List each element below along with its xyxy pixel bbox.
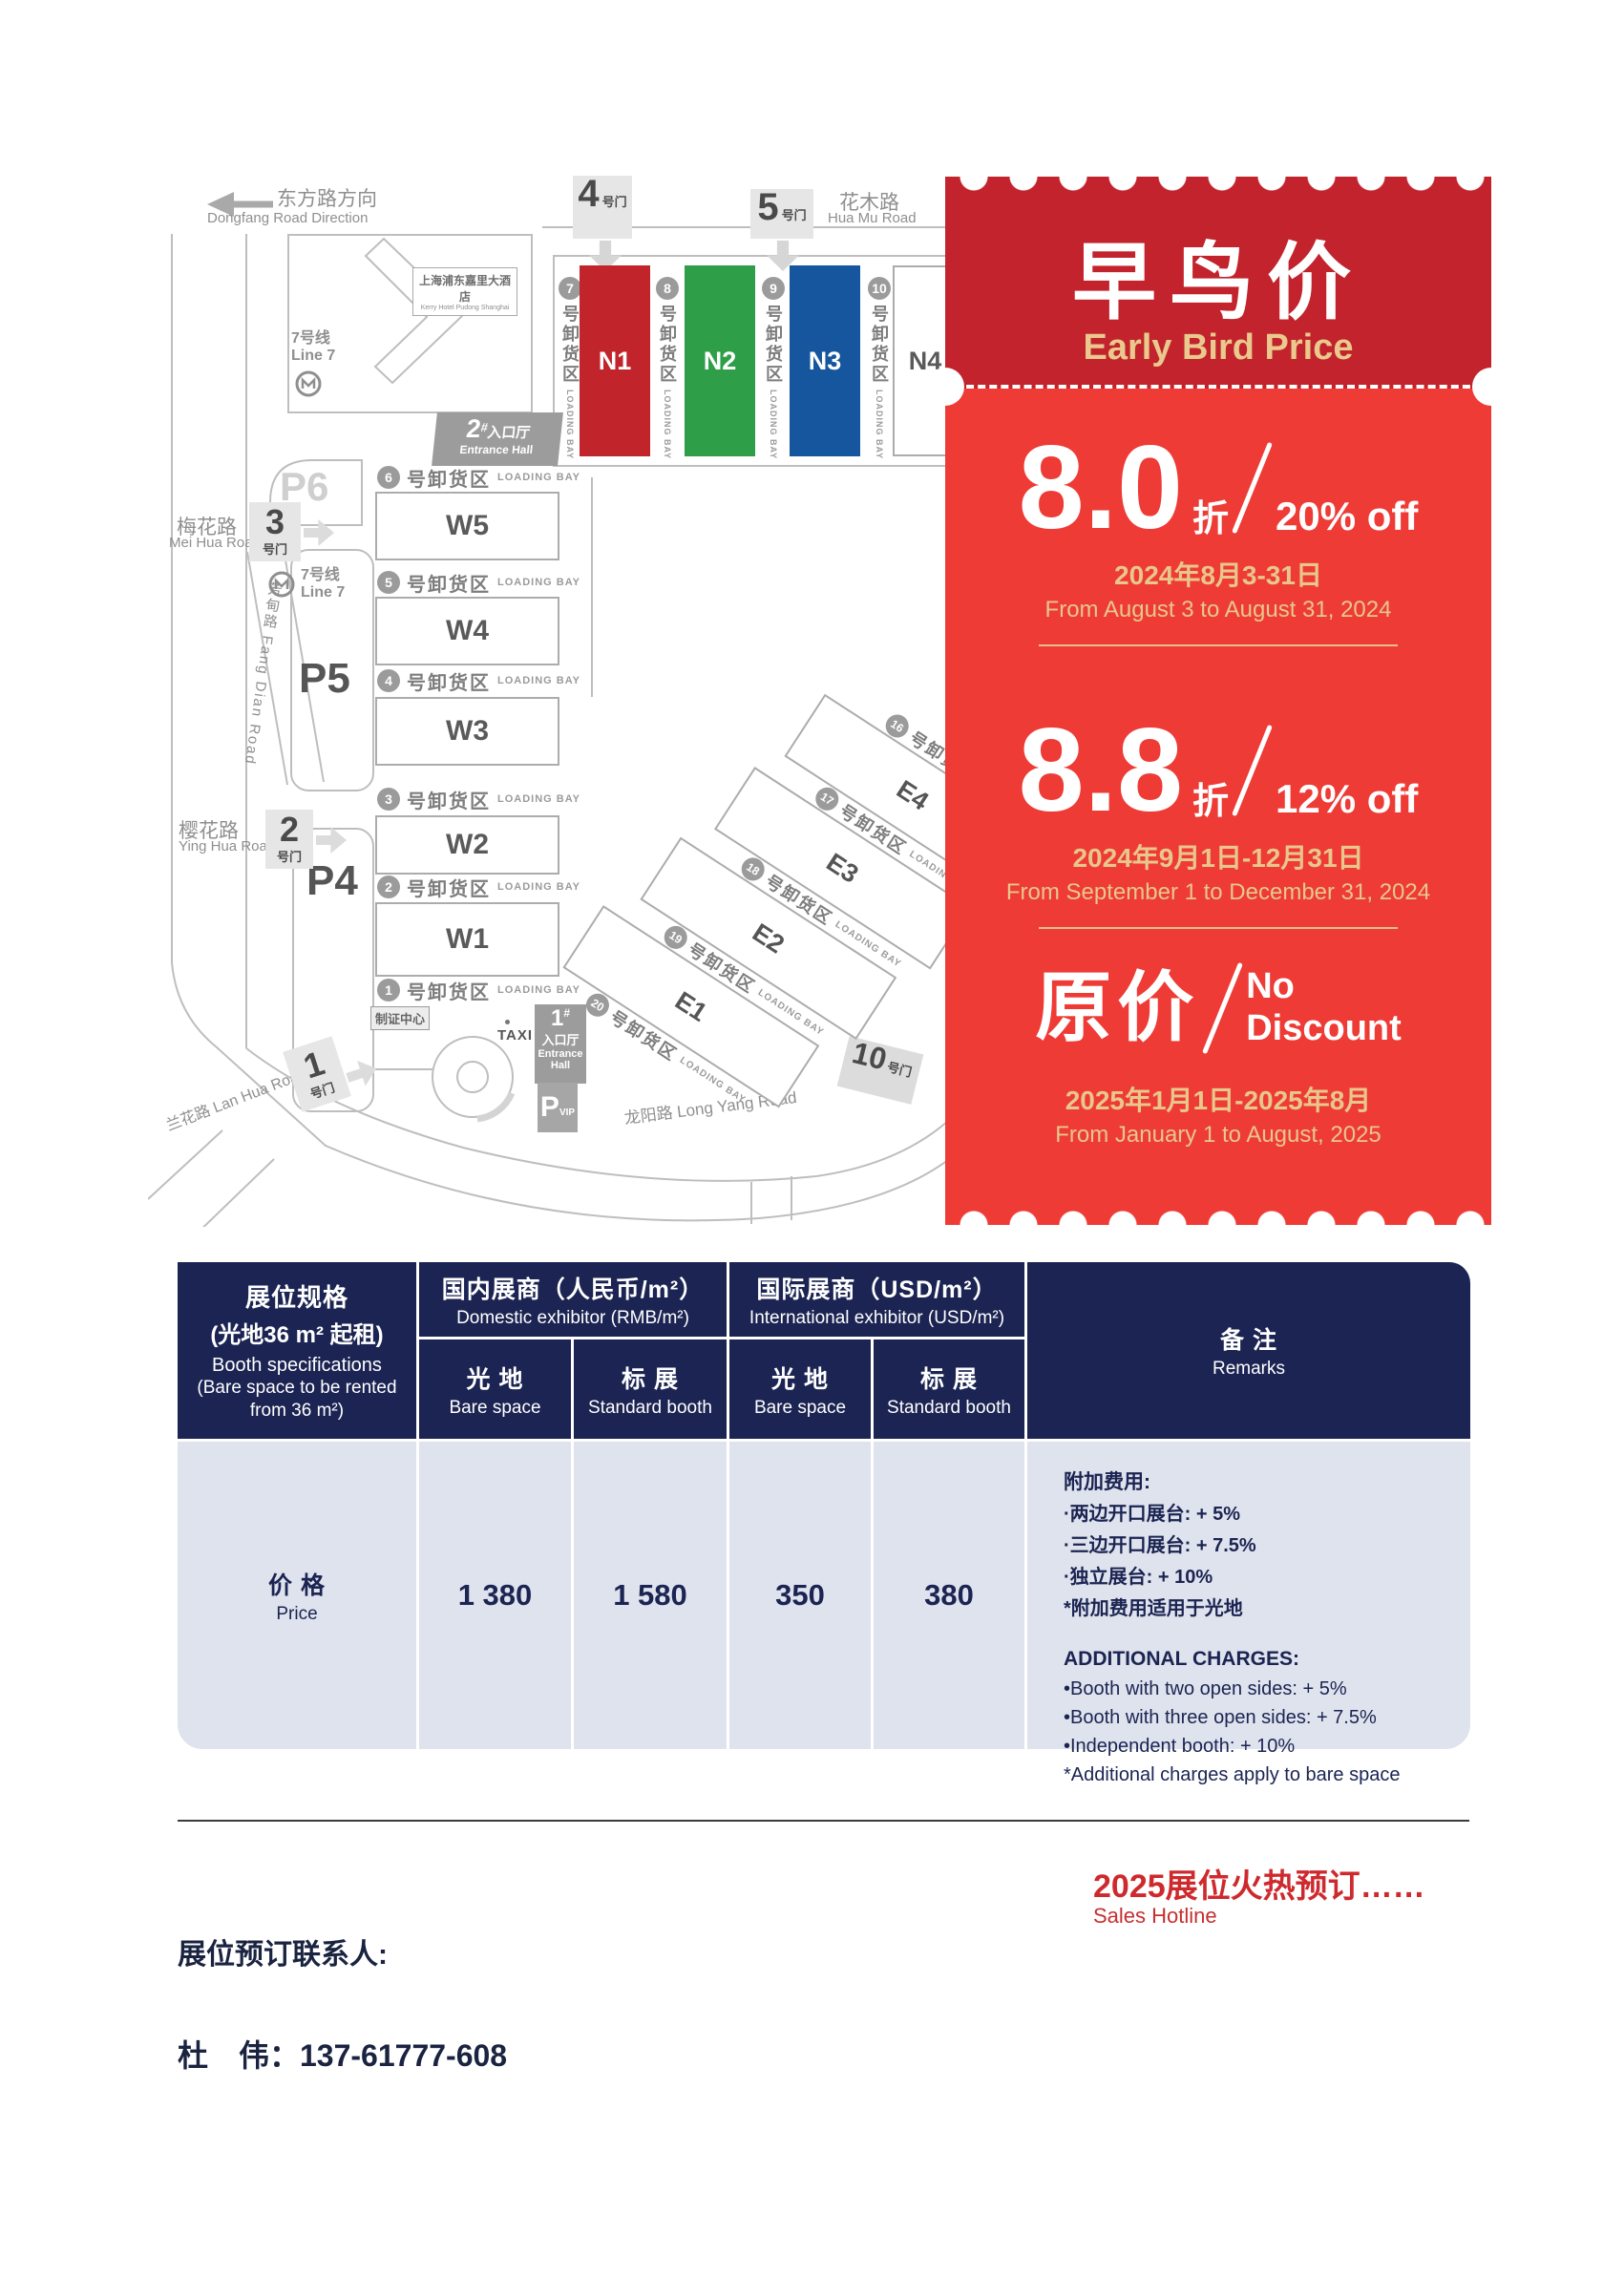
vip-parking-vip: VIP bbox=[559, 1107, 575, 1118]
hall-w1: W1 bbox=[375, 902, 559, 977]
loading-bay-8: 8 号卸货区 LOADING BAY bbox=[655, 277, 680, 459]
vip-parking-p: P bbox=[540, 1091, 559, 1124]
hall-w5: W5 bbox=[375, 492, 559, 560]
domestic-en: Domestic exhibitor (RMB/m²) bbox=[456, 1308, 689, 1329]
gold-divider bbox=[1039, 927, 1398, 929]
loading-bay-6: 6 号卸货区 LOADING BAY bbox=[377, 466, 580, 489]
remarks-header: 备 注 Remarks bbox=[1027, 1262, 1470, 1439]
price-zh: 价 格 bbox=[268, 1567, 326, 1601]
slash-icon bbox=[1232, 725, 1273, 816]
gate-suffix: 号门 bbox=[263, 539, 287, 558]
metro-logo-icon bbox=[297, 372, 320, 395]
entrance-hall-1: 1# 入口厅 Entrance Hall bbox=[535, 1004, 586, 1084]
bay-number-badge: 2 bbox=[377, 875, 400, 898]
price-value: 1 580 bbox=[613, 1578, 687, 1613]
ticket-perforation bbox=[955, 385, 1482, 389]
bay-label-en: LOADING BAY bbox=[497, 675, 580, 686]
remarks-en: Remarks bbox=[1213, 1359, 1285, 1380]
remarks-cn-item: ·两边开口展台: + 5% bbox=[1064, 1499, 1240, 1530]
bay-number-badge: 6 bbox=[377, 466, 400, 489]
footer-divider bbox=[178, 1820, 1469, 1822]
price-row-label: 价 格 Price bbox=[178, 1442, 416, 1749]
entrance-1-zh: 入口厅 bbox=[535, 1030, 586, 1048]
domestic-group-header: 国内展商（人民币/m²） Domestic exhibitor (RMB/m²) bbox=[419, 1262, 727, 1337]
tier1-discount-number: 8.0 bbox=[1019, 429, 1183, 547]
line7-en: Line 7 bbox=[301, 584, 345, 601]
col-spec-header: 展位规格 (光地36 m² 起租) Booth specifications (… bbox=[178, 1262, 416, 1439]
ticket-title-zh: 早鸟价 bbox=[945, 215, 1491, 336]
bay-label-zh: 号卸货区 bbox=[407, 786, 491, 813]
sales-hotline-label: Sales Hotline bbox=[1093, 1904, 1217, 1929]
tier2-price: 8.8 折 12% off bbox=[945, 704, 1491, 837]
price-international-standard: 380 bbox=[874, 1442, 1024, 1749]
tier3-date-en: From January 1 to August, 2025 bbox=[945, 1122, 1491, 1149]
tier3-no: No bbox=[1246, 966, 1402, 1008]
parking-p5: P5 bbox=[299, 655, 350, 703]
bay-label-zh: 号卸货区 bbox=[407, 569, 491, 597]
tier3-date-zh: 2025年1月1日-2025年8月 bbox=[945, 1080, 1491, 1118]
gate-3-number: 3 bbox=[265, 506, 285, 538]
hall-w3: W3 bbox=[375, 697, 559, 766]
bay-number-badge: 7 bbox=[559, 277, 581, 300]
loading-bay-5: 5 号卸货区 LOADING BAY bbox=[377, 571, 580, 594]
bay-number-badge: 1 bbox=[377, 979, 400, 1002]
price-domestic-bare: 1 380 bbox=[419, 1442, 571, 1749]
tier2-date-zh: 2024年9月1日-12月31日 bbox=[945, 837, 1491, 875]
early-bird-ticket: 早鸟价 Early Bird Price 8.0 折 20% off 2024年… bbox=[945, 177, 1491, 1225]
international-standard-header: 标 展 Standard booth bbox=[874, 1339, 1024, 1439]
remarks-cn-title: 附加费用: bbox=[1064, 1466, 1150, 1499]
spec-en: Booth specifications bbox=[212, 1355, 382, 1377]
taxi-dot-icon bbox=[505, 1020, 510, 1024]
slash-icon bbox=[1232, 442, 1273, 534]
gate-4: 4 号门 bbox=[573, 176, 632, 239]
tier3-discount: Discount bbox=[1246, 1008, 1402, 1050]
contact-phone: 杜 伟：137-61777-608 bbox=[178, 2032, 507, 2076]
standard-zh: 标 展 bbox=[622, 1360, 679, 1395]
entrance-1-hash: # bbox=[563, 1006, 570, 1020]
remarks-en-item: *Additional charges apply to bare space bbox=[1064, 1761, 1400, 1789]
entrance-2-zh: 入口厅 bbox=[486, 425, 531, 441]
bay-number-badge: 9 bbox=[762, 277, 785, 300]
spec-en3: from 36 m²) bbox=[250, 1400, 344, 1423]
meihua-road-label-en: Mei Hua Road bbox=[169, 535, 261, 551]
spec-zh2: (光地36 m² 起租) bbox=[210, 1316, 383, 1349]
loading-bay-9: 9 号卸货区 LOADING BAY bbox=[761, 277, 786, 459]
hall-n3: N3 bbox=[790, 265, 860, 456]
dongfang-road-label-zh: 东方路方向 bbox=[277, 183, 377, 212]
bay-number-badge: 3 bbox=[377, 788, 400, 811]
entrance-hall-2: 2#入口厅 Entrance Hall bbox=[432, 412, 563, 466]
bay-label-en: LOADING BAY bbox=[769, 390, 778, 459]
gate-5-number: 5 bbox=[757, 189, 778, 225]
gold-divider bbox=[1039, 644, 1398, 646]
tier3-original-price: 原价 bbox=[1035, 970, 1199, 1046]
international-zh: 国际展商（USD/m²） bbox=[756, 1271, 997, 1305]
entrance-1-en: Hall bbox=[535, 1060, 586, 1071]
bare-en: Bare space bbox=[754, 1398, 846, 1419]
gate-2: 2 号门 bbox=[265, 810, 313, 869]
remarks-en-item: •Independent booth: + 10% bbox=[1064, 1732, 1295, 1761]
hall-w4: W4 bbox=[375, 597, 559, 665]
price-en: Price bbox=[276, 1604, 317, 1625]
bay-label-en: LOADING BAY bbox=[497, 881, 580, 893]
entrance-1-en: Entrance bbox=[535, 1048, 586, 1060]
huamu-road-label-en: Hua Mu Road bbox=[828, 210, 917, 226]
tier3-dates: 2025年1月1日-2025年8月 From January 1 to Augu… bbox=[945, 1080, 1491, 1149]
loading-bay-3: 3 号卸货区 LOADING BAY bbox=[377, 788, 580, 811]
tier1-off-percent: 20% off bbox=[1276, 494, 1418, 539]
contact-person-label: 展位预订联系人: bbox=[178, 1930, 388, 1972]
bay-label-zh: 号卸货区 bbox=[407, 667, 491, 695]
slash-icon bbox=[1202, 962, 1243, 1054]
dongfang-road-label-en: Dongfang Road Direction bbox=[207, 210, 368, 226]
yinghua-road-label-en: Ying Hua Road bbox=[179, 838, 275, 854]
spec-zh: 展位规格 bbox=[245, 1278, 348, 1314]
entrance-1-number: 1 bbox=[551, 1005, 563, 1031]
bay-label-zh: 号卸货区 bbox=[761, 305, 786, 385]
bay-label-zh: 号卸货区 bbox=[655, 305, 680, 385]
bare-zh: 光 地 bbox=[771, 1360, 829, 1395]
remarks-cn-item: ·三边开口展台: + 7.5% bbox=[1064, 1530, 1256, 1562]
ticket-bottom-scallop bbox=[945, 1196, 1491, 1225]
tier2-discount-number: 8.8 bbox=[1019, 711, 1183, 830]
tier1-dates: 2024年8月3-31日 From August 3 to August 31,… bbox=[945, 555, 1491, 623]
price-international-bare: 350 bbox=[729, 1442, 871, 1749]
bay-label-zh: 号卸货区 bbox=[867, 305, 892, 385]
international-group-header: 国际展商（USD/m²） International exhibitor (US… bbox=[729, 1262, 1024, 1337]
tier1-zhe: 折 bbox=[1192, 489, 1229, 541]
parking-p4: P4 bbox=[306, 857, 358, 905]
gate-2-number: 2 bbox=[280, 813, 299, 846]
hall-n2: N2 bbox=[685, 265, 755, 456]
domestic-zh: 国内展商（人民币/m²） bbox=[442, 1271, 705, 1305]
certificate-center-label: 制证中心 bbox=[370, 1006, 430, 1030]
hall-n1: N1 bbox=[580, 265, 650, 456]
domestic-bare-header: 光 地 Bare space bbox=[419, 1339, 571, 1439]
flyer-page: 东方路方向 Dongfang Road Direction 梅花路 Mei Hu… bbox=[0, 0, 1624, 2278]
kerry-hotel-zh: 上海浦东嘉里大酒店 bbox=[416, 272, 514, 305]
price-value: 1 380 bbox=[458, 1578, 533, 1613]
ticket-notch-right bbox=[1472, 368, 1510, 406]
remarks-cn-item: *附加费用适用于光地 bbox=[1064, 1593, 1243, 1625]
bay-number-badge: 10 bbox=[868, 277, 891, 300]
bay-number-badge: 5 bbox=[377, 571, 400, 594]
domestic-standard-header: 标 展 Standard booth bbox=[574, 1339, 727, 1439]
gate-suffix: 号门 bbox=[277, 847, 302, 865]
tier1-price: 8.0 折 20% off bbox=[945, 421, 1491, 555]
price-domestic-standard: 1 580 bbox=[574, 1442, 727, 1749]
international-bare-header: 光 地 Bare space bbox=[729, 1339, 871, 1439]
tier2-date-en: From September 1 to December 31, 2024 bbox=[945, 879, 1491, 906]
remarks-en-item: •Booth with two open sides: + 5% bbox=[1064, 1675, 1347, 1703]
tier3-no-discount: No Discount bbox=[1246, 966, 1402, 1049]
gate-suffix: 号门 bbox=[602, 192, 627, 210]
bay-number-badge: 4 bbox=[377, 669, 400, 692]
loading-bay-10: 10 号卸货区 LOADING BAY bbox=[867, 277, 892, 459]
remarks-en-item: •Booth with three open sides: + 7.5% bbox=[1064, 1703, 1377, 1732]
gate-4-number: 4 bbox=[578, 176, 599, 212]
bare-zh: 光 地 bbox=[467, 1360, 524, 1395]
standard-en: Standard booth bbox=[588, 1398, 712, 1419]
tier3-price: 原价 No Discount bbox=[945, 946, 1491, 1070]
venue-map: 东方路方向 Dongfang Road Direction 梅花路 Mei Hu… bbox=[148, 162, 979, 1227]
standard-en: Standard booth bbox=[887, 1398, 1011, 1419]
remarks-cn-item: ·独立展台: + 10% bbox=[1064, 1562, 1213, 1593]
kerry-hotel-label: 上海浦东嘉里大酒店 Kerry Hotel Pudong Shanghai bbox=[412, 267, 517, 316]
remarks-en-title: ADDITIONAL CHARGES: bbox=[1064, 1644, 1299, 1675]
line7-zh: 7号线 bbox=[301, 567, 345, 584]
vip-parking: P VIP bbox=[538, 1083, 578, 1132]
bare-en: Bare space bbox=[449, 1398, 540, 1419]
gate-5: 5 号门 bbox=[750, 189, 813, 239]
international-en: International exhibitor (USD/m²) bbox=[749, 1308, 1004, 1329]
hall-w2: W2 bbox=[375, 815, 559, 875]
bay-label-zh: 号卸货区 bbox=[407, 977, 491, 1004]
remarks-zh: 备 注 bbox=[1220, 1321, 1277, 1356]
price-value: 350 bbox=[775, 1578, 825, 1613]
spec-en2: (Bare space to be rented bbox=[197, 1377, 396, 1400]
bay-label-en: LOADING BAY bbox=[663, 390, 672, 459]
tier1-date-en: From August 3 to August 31, 2024 bbox=[945, 597, 1491, 623]
ticket-notch-left bbox=[926, 368, 964, 406]
booking-hot-title: 2025展位火热预订…… bbox=[1093, 1860, 1425, 1907]
entrance-2-en: Entrance Hall bbox=[432, 444, 559, 455]
line7-en: Line 7 bbox=[291, 348, 335, 365]
taxi-label: TAXI bbox=[497, 1027, 533, 1044]
pricing-table: 展位规格 (光地36 m² 起租) Booth specifications (… bbox=[178, 1262, 1470, 1749]
standard-zh: 标 展 bbox=[920, 1360, 978, 1395]
kerry-hotel-en: Kerry Hotel Pudong Shanghai bbox=[416, 305, 514, 311]
remarks-body: 附加费用: ·两边开口展台: + 5% ·三边开口展台: + 7.5% ·独立展… bbox=[1027, 1442, 1470, 1749]
line7-label-mid: 7号线 Line 7 bbox=[301, 567, 345, 602]
tier2-off-percent: 12% off bbox=[1276, 776, 1418, 822]
bay-label-zh: 号卸货区 bbox=[407, 874, 491, 901]
bay-label-en: LOADING BAY bbox=[565, 390, 575, 459]
tier2-zhe: 折 bbox=[1192, 771, 1229, 824]
bay-label-en: LOADING BAY bbox=[497, 577, 580, 588]
line7-label-top: 7号线 Line 7 bbox=[291, 330, 335, 366]
bay-label-en: LOADING BAY bbox=[497, 793, 580, 805]
tier1-date-zh: 2024年8月3-31日 bbox=[945, 555, 1491, 593]
bay-label-zh: 号卸货区 bbox=[407, 464, 491, 492]
loading-bay-4: 4 号卸货区 LOADING BAY bbox=[377, 669, 580, 692]
price-value: 380 bbox=[924, 1578, 974, 1613]
bay-label-en: LOADING BAY bbox=[875, 390, 884, 459]
loading-bay-2: 2 号卸货区 LOADING BAY bbox=[377, 875, 580, 898]
bay-label-en: LOADING BAY bbox=[497, 472, 580, 483]
gate-suffix: 号门 bbox=[782, 205, 807, 223]
ticket-title-en: Early Bird Price bbox=[945, 327, 1491, 369]
tier2-dates: 2024年9月1日-12月31日 From September 1 to Dec… bbox=[945, 837, 1491, 906]
line7-zh: 7号线 bbox=[291, 330, 335, 348]
gate-3: 3 号门 bbox=[249, 502, 301, 561]
bay-number-badge: 8 bbox=[656, 277, 679, 300]
